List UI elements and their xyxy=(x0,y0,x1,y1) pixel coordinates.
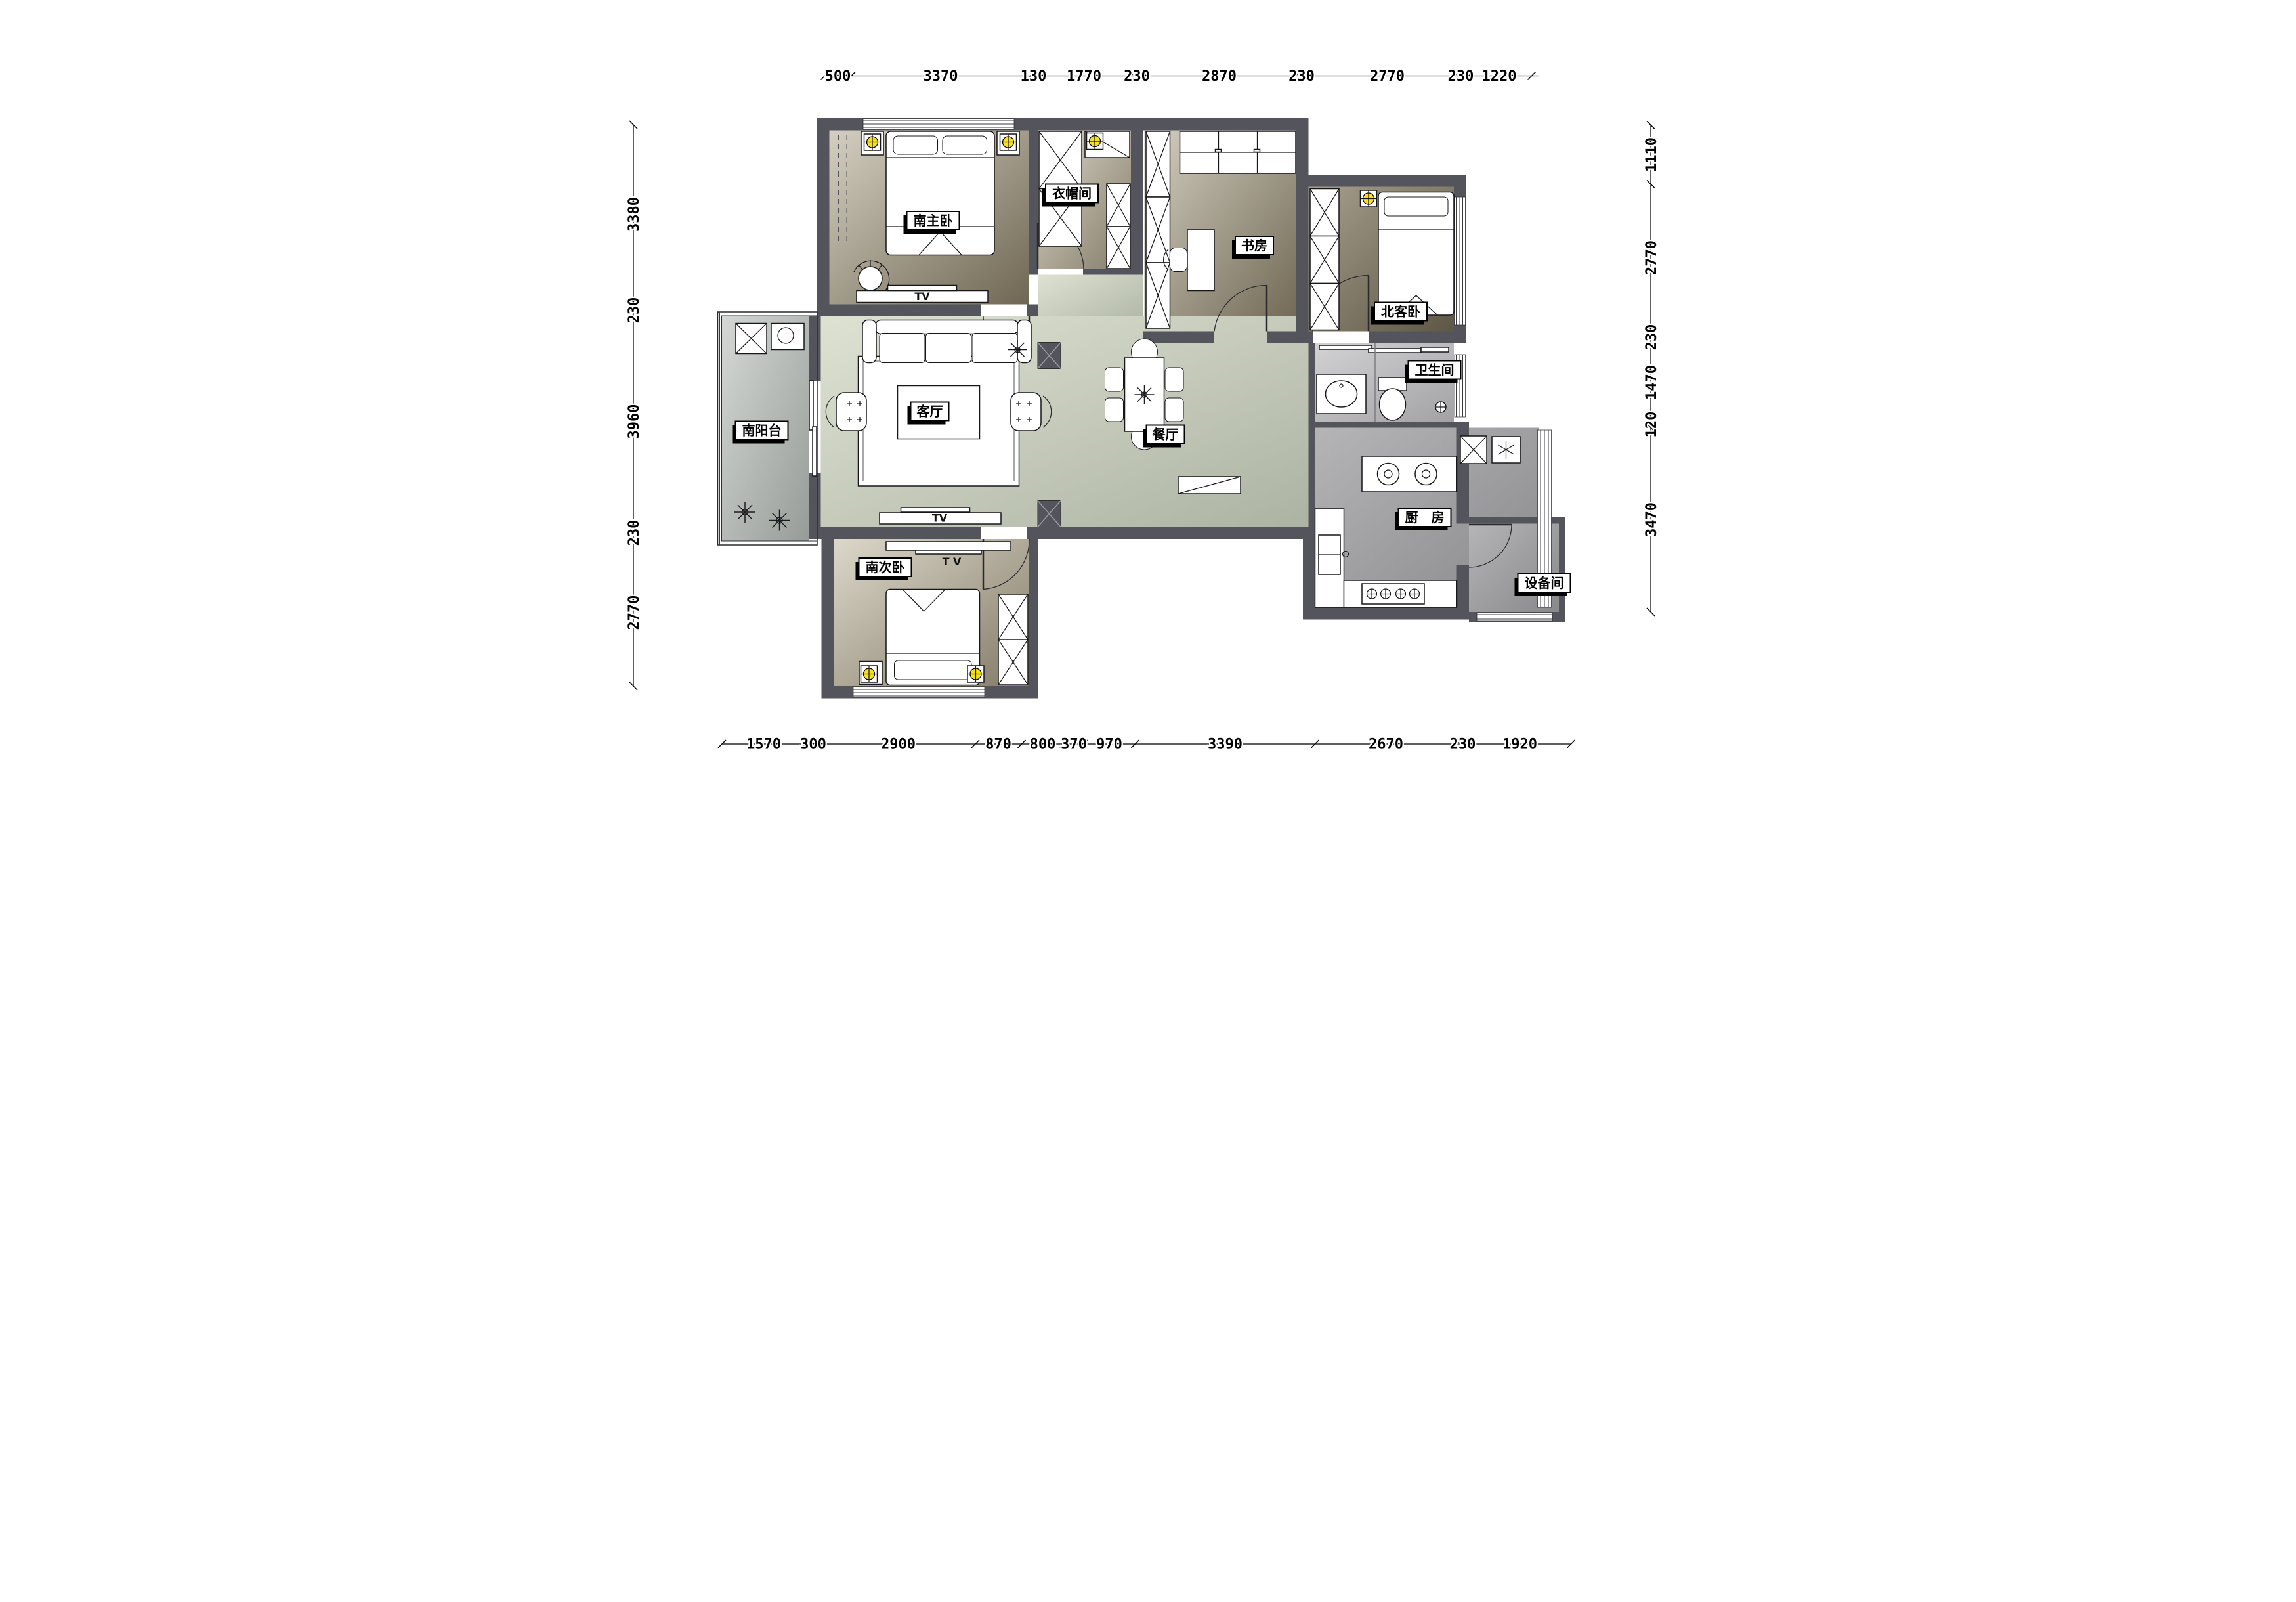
svg-text:800: 800 xyxy=(1029,737,1055,753)
svg-text:230: 230 xyxy=(626,297,643,324)
svg-text:2770: 2770 xyxy=(1644,240,1660,275)
svg-text:230: 230 xyxy=(626,520,643,546)
balcony-sliding-door xyxy=(809,381,817,476)
south-tv-text: T V xyxy=(942,555,961,568)
desk xyxy=(1187,230,1214,291)
wall-lamp-icon xyxy=(967,666,984,682)
svg-text:书房: 书房 xyxy=(1241,238,1267,253)
svg-text:370: 370 xyxy=(1061,737,1087,753)
svg-text:3960: 3960 xyxy=(626,404,643,439)
svg-text:3370: 3370 xyxy=(923,68,958,85)
svg-text:2770: 2770 xyxy=(1370,68,1405,85)
svg-text:870: 870 xyxy=(985,737,1011,753)
dimension-right: 1110 2770 230 1470 120 3470 xyxy=(1644,121,1660,617)
plant-icon xyxy=(1008,340,1027,360)
room-label-kitchen: 厨 房 xyxy=(1395,508,1451,530)
svg-text:北客卧: 北客卧 xyxy=(1381,304,1420,320)
shower-drain-icon xyxy=(1435,402,1446,412)
dimension-bottom: 1570 300 2900 870 800 370 970 3390 2670 … xyxy=(718,737,1575,753)
svg-text:厨 房: 厨 房 xyxy=(1405,509,1444,525)
balcony-sink xyxy=(771,324,804,350)
svg-text:南主卧: 南主卧 xyxy=(913,213,952,228)
svg-text:2900: 2900 xyxy=(881,737,916,753)
tv-screen xyxy=(887,286,956,291)
svg-text:1770: 1770 xyxy=(1067,68,1101,85)
equipment-window xyxy=(1477,613,1552,621)
wall-lamp-icon xyxy=(861,666,877,682)
room-label-balcony: 南阳台 xyxy=(732,422,788,444)
wall-lamp-icon xyxy=(1360,190,1376,207)
dimension-left: 3380 230 3960 230 2770 xyxy=(626,121,643,690)
master-window xyxy=(863,119,1014,130)
tv-screen xyxy=(901,508,969,512)
svg-text:1570: 1570 xyxy=(746,737,781,753)
toilet-bowl xyxy=(1379,389,1405,420)
dimension-top: 500 3370 130 1770 230 2870 230 2770 230 … xyxy=(820,68,1538,85)
svg-text:3380: 3380 xyxy=(626,197,643,232)
svg-text:1110: 1110 xyxy=(1644,137,1660,172)
sofa-back xyxy=(876,320,1018,334)
plant-icon xyxy=(1134,385,1154,404)
tv-screen xyxy=(916,550,981,554)
room-label-south-bedroom: 南次卧 xyxy=(855,558,911,580)
svg-text:南阳台: 南阳台 xyxy=(742,423,781,439)
stove-icon xyxy=(1362,584,1424,604)
svg-text:2670: 2670 xyxy=(1369,737,1403,753)
svg-text:500: 500 xyxy=(824,68,851,85)
svg-text:衣帽间: 衣帽间 xyxy=(1052,186,1092,202)
room-label-living-room: 客厅 xyxy=(907,402,948,425)
floor-plan-canvas: TV xyxy=(574,0,1722,801)
svg-text:300: 300 xyxy=(800,737,826,753)
floor-plan-page: TV xyxy=(574,0,1722,801)
svg-text:970: 970 xyxy=(1096,737,1122,753)
room-label-bathroom: 卫生间 xyxy=(1405,361,1460,383)
svg-text:2770: 2770 xyxy=(626,595,643,630)
room-label-north-bedroom: 北客卧 xyxy=(1371,303,1427,325)
svg-text:230: 230 xyxy=(1449,737,1476,753)
room-label-equipment-room: 设备间 xyxy=(1514,574,1570,596)
svg-text:2870: 2870 xyxy=(1202,68,1237,85)
room-label-cloakroom: 衣帽间 xyxy=(1042,184,1098,207)
svg-text:230: 230 xyxy=(1288,68,1315,85)
sink xyxy=(1325,381,1357,407)
fridge-snowflake-icon xyxy=(1492,437,1520,463)
svg-text:120: 120 xyxy=(1644,412,1660,438)
north-bedroom-window xyxy=(1455,197,1466,325)
svg-text:3390: 3390 xyxy=(1208,737,1243,753)
svg-text:130: 130 xyxy=(1020,68,1046,85)
svg-text:1470: 1470 xyxy=(1644,365,1660,400)
room-label-dining-room: 餐厅 xyxy=(1143,425,1184,448)
svg-text:卫生间: 卫生间 xyxy=(1414,362,1454,378)
svg-text:3470: 3470 xyxy=(1644,502,1660,537)
living-tv-text: TV xyxy=(931,512,947,525)
svg-text:餐厅: 餐厅 xyxy=(1152,427,1178,443)
towel-rail xyxy=(1421,347,1449,352)
svg-text:南次卧: 南次卧 xyxy=(865,559,904,575)
south-bedroom-window xyxy=(853,687,985,698)
south-tv-shelf xyxy=(886,542,1011,550)
wall-lamp-icon xyxy=(1000,134,1016,150)
room-label-master-bedroom: 南主卧 xyxy=(903,211,959,234)
room-label-study: 书房 xyxy=(1232,236,1273,259)
desk-chair xyxy=(1170,248,1187,272)
svg-text:230: 230 xyxy=(1447,68,1474,85)
svg-text:230: 230 xyxy=(1124,68,1150,85)
svg-text:设备间: 设备间 xyxy=(1524,575,1563,591)
master-tv-text: TV xyxy=(914,290,930,303)
svg-text:230: 230 xyxy=(1644,324,1660,351)
kitchen-island xyxy=(1362,456,1457,492)
wall-lamp-icon xyxy=(864,134,880,150)
washing-machine-icon xyxy=(736,324,767,354)
wall-lamp-icon xyxy=(1086,133,1103,150)
svg-text:1920: 1920 xyxy=(1502,737,1537,753)
svg-text:客厅: 客厅 xyxy=(916,404,943,420)
svg-text:1220: 1220 xyxy=(1481,68,1516,85)
